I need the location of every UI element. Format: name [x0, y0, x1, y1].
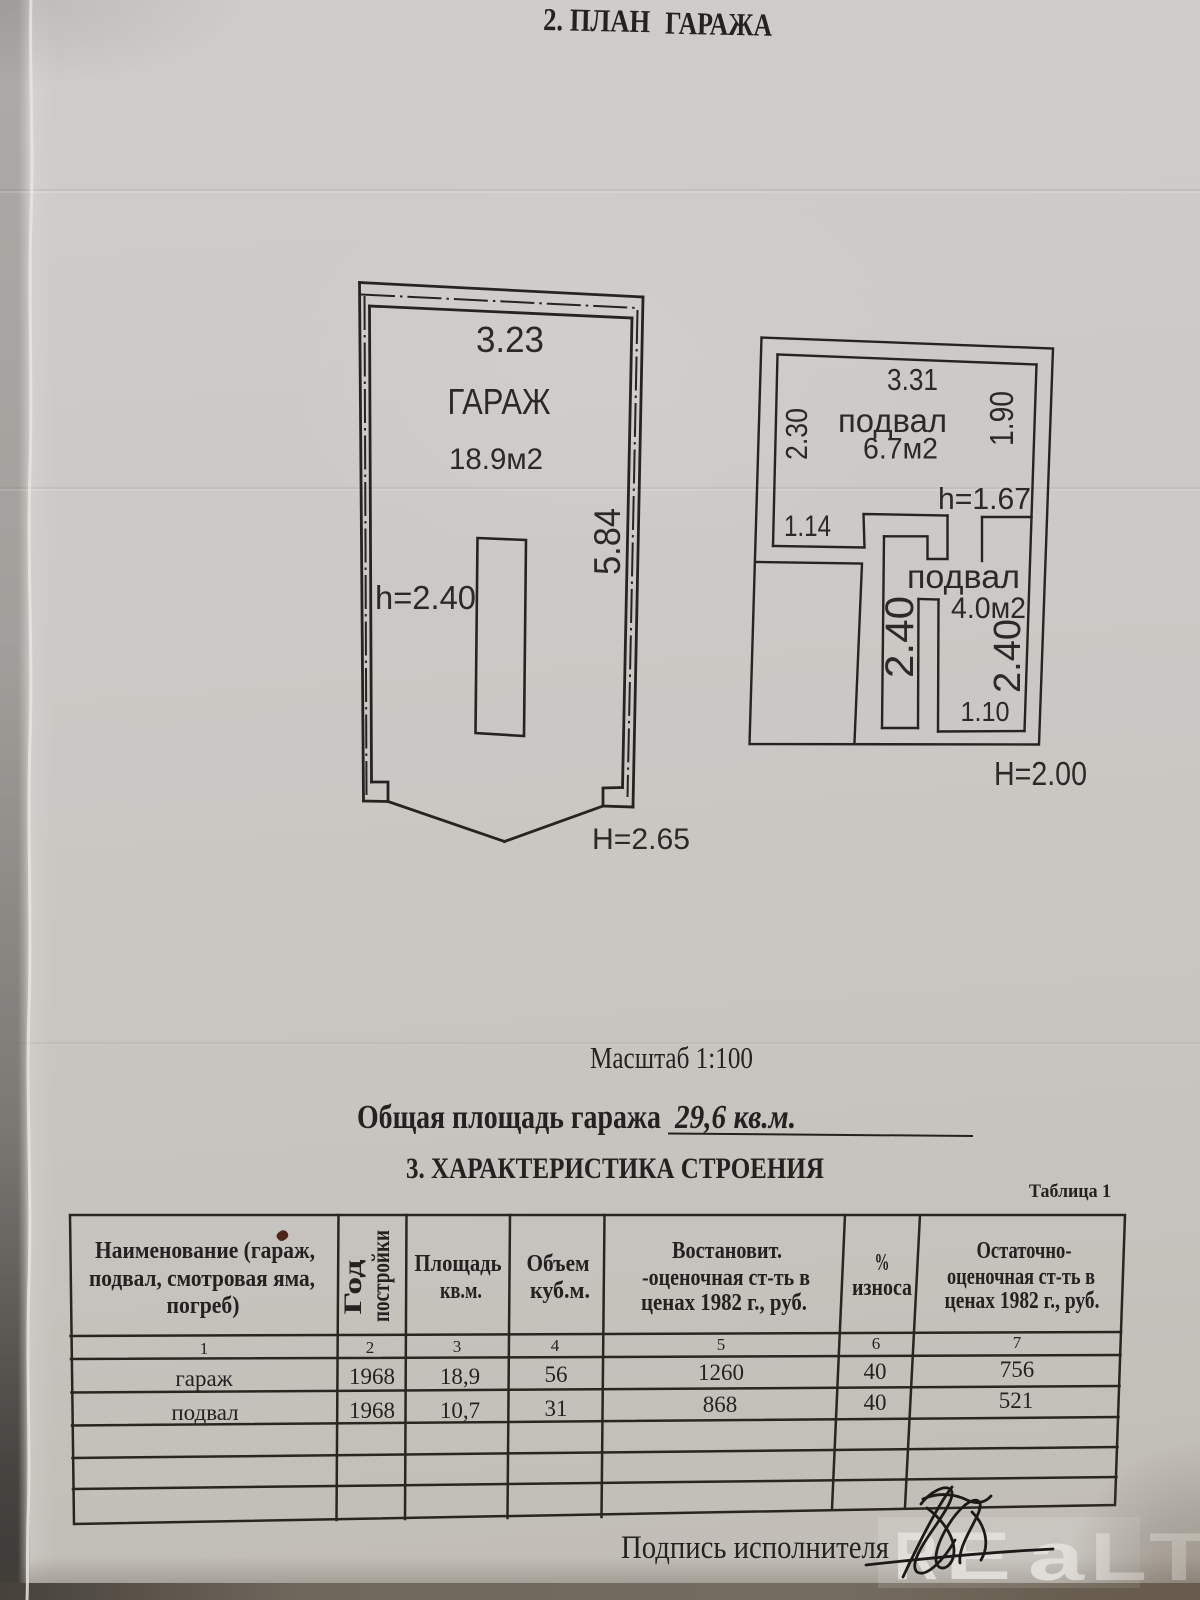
svg-text:Н=2.00: Н=2.00: [994, 755, 1087, 792]
svg-text:4: 4: [551, 1336, 560, 1355]
svg-text:3: 3: [453, 1337, 462, 1356]
svg-text:1968: 1968: [349, 1364, 395, 1389]
svg-text:31: 31: [545, 1396, 568, 1421]
svg-text:1.10: 1.10: [961, 696, 1010, 727]
svg-text:6.7м2: 6.7м2: [863, 433, 938, 466]
svg-text:ценах 1982 г., руб.: ценах 1982 г., руб.: [641, 1290, 807, 1316]
svg-text:5: 5: [717, 1335, 726, 1354]
svg-text:подвал: подвал: [171, 1400, 238, 1425]
svg-text:подвал, смотровая яма,: подвал, смотровая яма,: [89, 1266, 315, 1292]
svg-text:2.40: 2.40: [987, 619, 1029, 693]
svg-text:Наименование (гараж,: Наименование (гараж,: [95, 1238, 315, 1264]
svg-text:износа: износа: [852, 1275, 912, 1301]
svg-text:Остаточно-: Остаточно-: [977, 1238, 1072, 1264]
svg-text:постройки: постройки: [368, 1230, 395, 1322]
svg-text:Год: Год: [340, 1259, 367, 1315]
svg-text:Масштаб 1:100: Масштаб 1:100: [590, 1040, 753, 1075]
svg-text:10,7: 10,7: [440, 1398, 480, 1423]
svg-text:2.40: 2.40: [878, 596, 922, 678]
svg-text:%: %: [875, 1250, 890, 1276]
svg-text:ценах 1982 г., руб.: ценах 1982 г., руб.: [945, 1288, 1100, 1314]
svg-text:3. ХАРАКТЕРИСТИКА СТРОЕНИЯ: 3. ХАРАКТЕРИСТИКА СТРОЕНИЯ: [406, 1152, 824, 1185]
svg-text:18.9м2: 18.9м2: [449, 443, 543, 476]
svg-text:56: 56: [545, 1362, 568, 1387]
svg-text:2. ПЛАН: 2. ПЛАН: [543, 1, 651, 39]
svg-text:1: 1: [200, 1339, 209, 1358]
svg-text:1.90: 1.90: [983, 391, 1020, 446]
svg-text:29,6 кв.м.: 29,6 кв.м.: [674, 1099, 796, 1136]
svg-text:40: 40: [864, 1359, 887, 1384]
svg-text:-оценочная ст-ть в: -оценочная ст-ть в: [642, 1265, 810, 1291]
svg-text:кв.м.: кв.м.: [440, 1278, 482, 1304]
svg-text:Общая площадь гаража: Общая площадь гаража: [357, 1099, 661, 1136]
svg-text:1.14: 1.14: [784, 510, 831, 543]
svg-text:18,9: 18,9: [440, 1364, 480, 1389]
svg-text:868: 868: [703, 1392, 738, 1417]
svg-text:гараж: гараж: [175, 1366, 232, 1391]
svg-text:40: 40: [864, 1390, 887, 1415]
svg-text:7: 7: [1013, 1333, 1022, 1352]
svg-text:ГАРАЖА: ГАРАЖА: [665, 5, 773, 43]
svg-text:1260: 1260: [698, 1360, 744, 1385]
svg-text:1968: 1968: [349, 1398, 395, 1423]
svg-text:h=1.67: h=1.67: [938, 481, 1031, 516]
svg-text:куб.м.: куб.м.: [530, 1278, 590, 1304]
svg-text:оценочная ст-ть в: оценочная ст-ть в: [947, 1264, 1095, 1290]
svg-text:Объем: Объем: [527, 1251, 590, 1277]
svg-text:Площадь: Площадь: [415, 1251, 502, 1277]
svg-text:погреб): погреб): [167, 1293, 240, 1319]
svg-text:521: 521: [999, 1388, 1034, 1413]
svg-text:подвал: подвал: [907, 558, 1020, 595]
svg-text:3.23: 3.23: [476, 319, 544, 360]
svg-text:Подпись исполнителя: Подпись исполнителя: [621, 1530, 889, 1566]
svg-text:3.31: 3.31: [887, 362, 938, 397]
svg-text:756: 756: [1000, 1357, 1035, 1382]
svg-text:h=2.40: h=2.40: [375, 579, 476, 616]
svg-text:6: 6: [872, 1334, 881, 1353]
svg-text:2.30: 2.30: [779, 408, 814, 460]
svg-text:2: 2: [366, 1338, 375, 1357]
svg-text:Н=2.65: Н=2.65: [592, 823, 690, 856]
svg-text:ГАРАЖ: ГАРАЖ: [448, 381, 551, 422]
svg-text:Востановит.: Востановит.: [672, 1238, 782, 1264]
svg-text:5.84: 5.84: [587, 508, 628, 575]
svg-text:Таблица 1: Таблица 1: [1029, 1181, 1111, 1202]
